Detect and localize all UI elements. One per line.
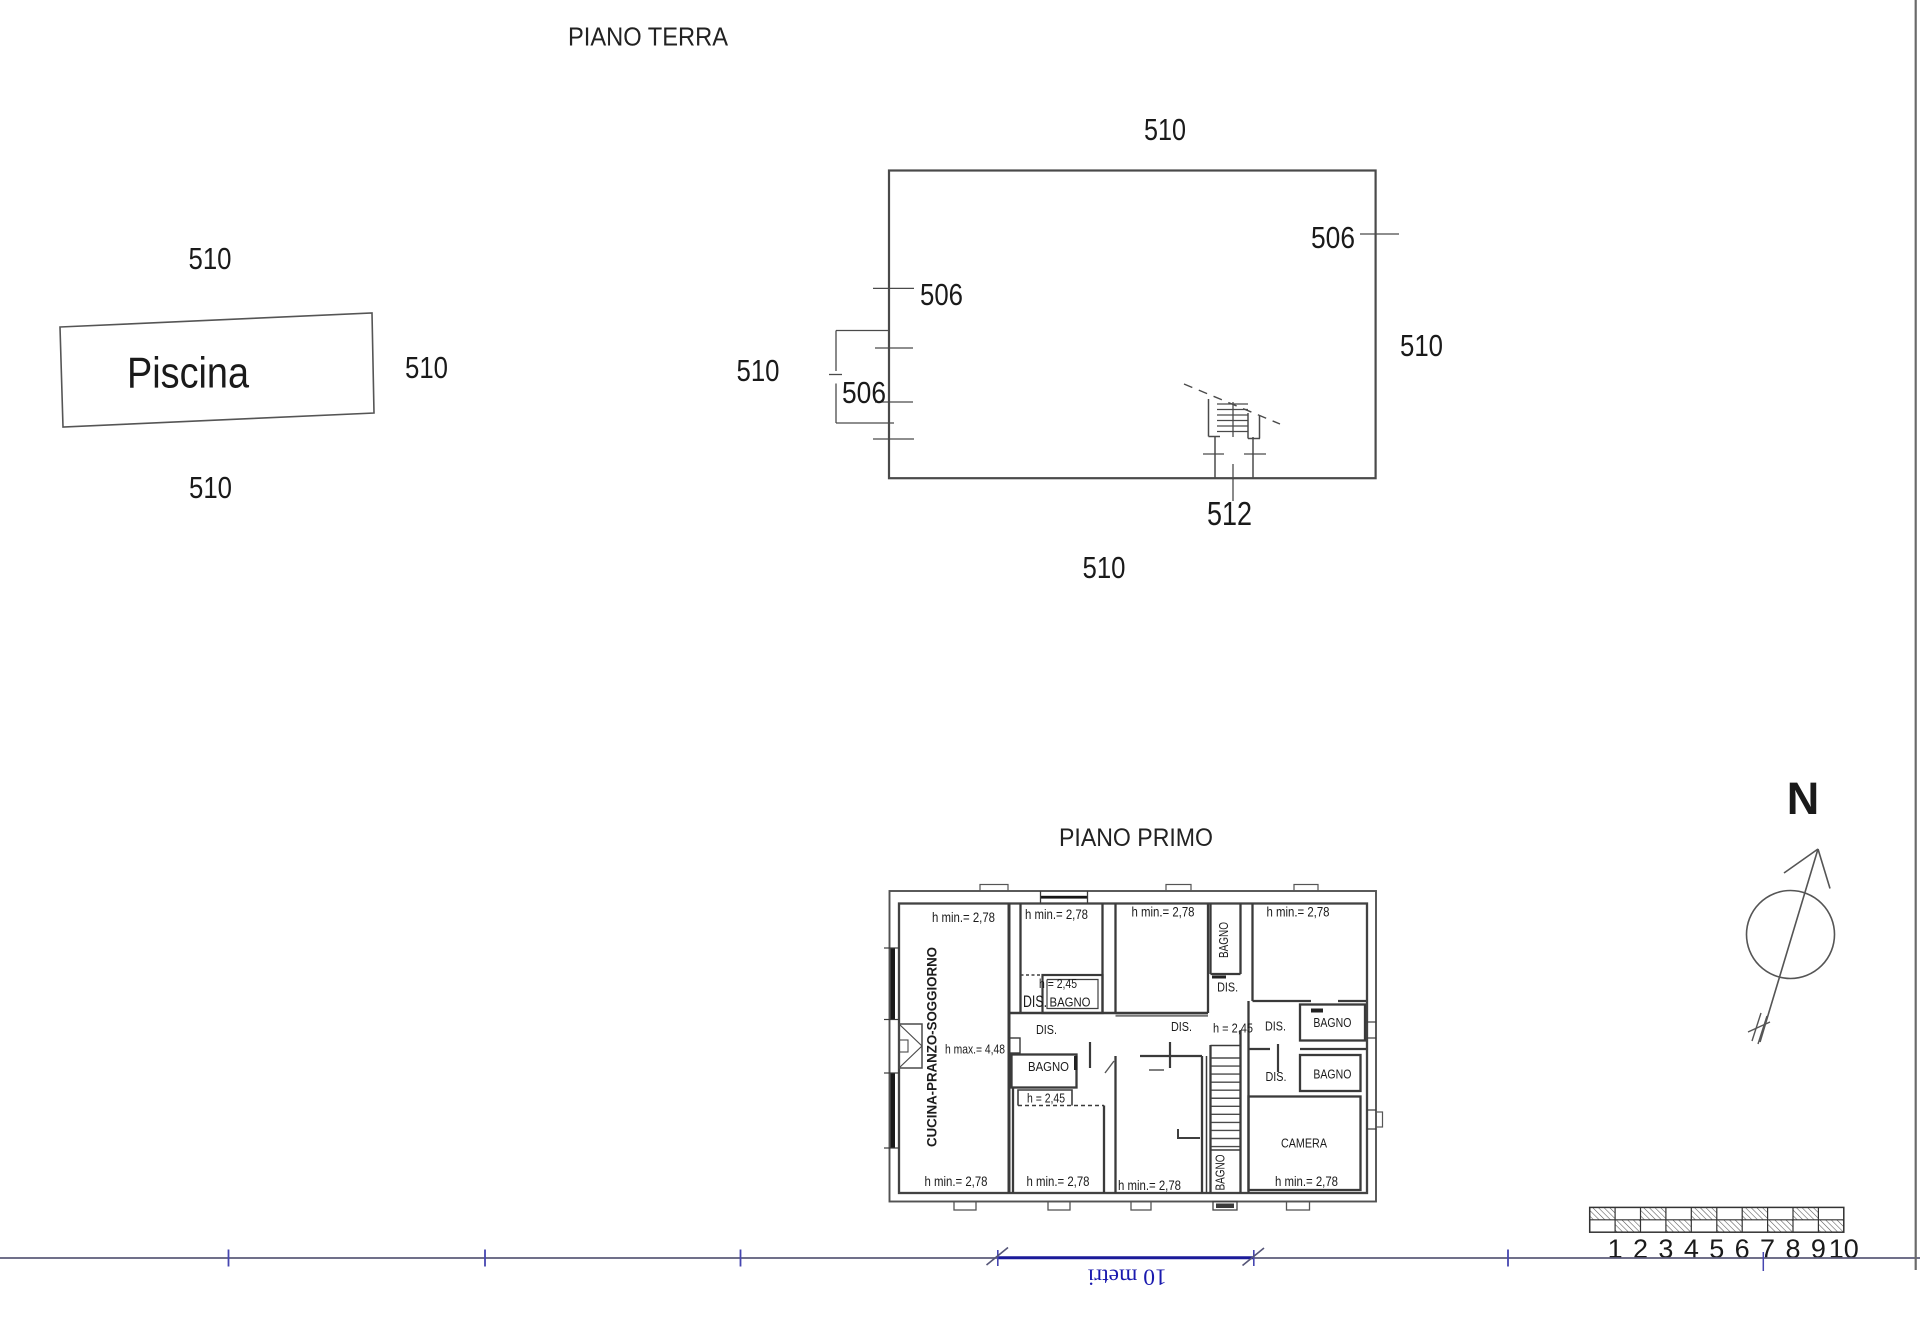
svg-text:Piscina: Piscina — [127, 350, 250, 398]
svg-text:BAGNO: BAGNO — [1028, 1060, 1069, 1074]
svg-text:BAGNO: BAGNO — [1313, 1016, 1351, 1030]
svg-text:h min.= 2,78: h min.= 2,78 — [925, 1174, 988, 1189]
svg-text:506: 506 — [1311, 220, 1355, 255]
svg-text:h min.= 2,78: h min.= 2,78 — [1118, 1178, 1181, 1193]
svg-text:6: 6 — [1735, 1234, 1750, 1264]
svg-text:PIANO PRIMO: PIANO PRIMO — [1059, 824, 1213, 852]
svg-text:DIS.: DIS. — [1266, 1070, 1287, 1084]
svg-text:DIS.: DIS. — [1265, 1020, 1286, 1034]
svg-text:9: 9 — [1811, 1234, 1826, 1264]
svg-text:3: 3 — [1658, 1234, 1673, 1264]
svg-text:BAGNO: BAGNO — [1214, 1154, 1228, 1190]
svg-text:BAGNO: BAGNO — [1313, 1067, 1351, 1081]
svg-text:h = 2,45: h = 2,45 — [1213, 1022, 1253, 1036]
svg-text:CAMERA: CAMERA — [1281, 1137, 1328, 1151]
svg-text:DIS.: DIS. — [1217, 980, 1238, 994]
svg-text:PIANO TERRA: PIANO TERRA — [568, 24, 728, 52]
svg-text:h min.= 2,78: h min.= 2,78 — [1267, 905, 1330, 920]
svg-text:510: 510 — [1400, 328, 1443, 363]
svg-text:h max.= 4,48: h max.= 4,48 — [945, 1042, 1005, 1057]
svg-text:506: 506 — [842, 375, 886, 410]
svg-text:h min.= 2,78: h min.= 2,78 — [932, 910, 995, 925]
svg-text:510: 510 — [405, 350, 448, 385]
svg-text:510: 510 — [737, 353, 780, 388]
svg-text:CUCINA-PRANZO-SOGGIORNO: CUCINA-PRANZO-SOGGIORNO — [925, 947, 940, 1147]
svg-text:N: N — [1787, 773, 1820, 824]
svg-text:5: 5 — [1709, 1234, 1724, 1264]
svg-text:h min.= 2,78: h min.= 2,78 — [1275, 1174, 1338, 1189]
svg-text:DIS.: DIS. — [1036, 1023, 1057, 1037]
svg-text:510: 510 — [1083, 550, 1126, 585]
svg-text:h min.= 2,78: h min.= 2,78 — [1132, 905, 1195, 920]
svg-text:2: 2 — [1633, 1234, 1648, 1264]
svg-text:10 metri: 10 metri — [1087, 1264, 1166, 1290]
svg-text:510: 510 — [1144, 112, 1186, 147]
svg-text:BAGNO: BAGNO — [1050, 996, 1091, 1010]
svg-text:DIS.: DIS. — [1171, 1020, 1192, 1034]
svg-text:DIS.: DIS. — [1023, 993, 1047, 1011]
svg-text:h = 2,45: h = 2,45 — [1039, 977, 1077, 991]
svg-text:506: 506 — [920, 277, 963, 312]
svg-text:510: 510 — [189, 470, 232, 505]
svg-text:7: 7 — [1760, 1234, 1775, 1264]
svg-text:BAGNO: BAGNO — [1217, 922, 1231, 958]
svg-text:510: 510 — [189, 241, 232, 276]
svg-text:512: 512 — [1207, 495, 1252, 532]
svg-text:h min.= 2,78: h min.= 2,78 — [1025, 907, 1088, 922]
svg-text:10: 10 — [1829, 1234, 1859, 1264]
svg-text:4: 4 — [1684, 1234, 1699, 1264]
svg-text:1: 1 — [1608, 1234, 1623, 1264]
svg-text:8: 8 — [1785, 1234, 1800, 1264]
svg-text:h min.= 2,78: h min.= 2,78 — [1027, 1174, 1090, 1189]
svg-text:h = 2,45: h = 2,45 — [1027, 1092, 1065, 1106]
